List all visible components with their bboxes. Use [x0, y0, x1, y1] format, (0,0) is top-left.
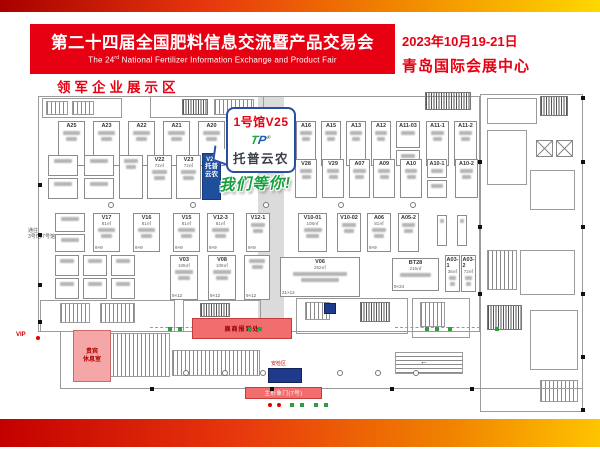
booth-cell-17 [84, 178, 114, 199]
booth-A10-2: A10-2 [455, 159, 478, 198]
column-circle-4 [410, 202, 416, 208]
booth-V23: V2372㎡ [176, 155, 201, 199]
booth-V06: V06252㎡21×12 [280, 257, 360, 297]
column-square-14 [270, 387, 274, 391]
booth-cell-30 [55, 213, 85, 232]
booth-cell-48 [111, 278, 135, 299]
booth-cell-41 [437, 215, 447, 246]
green-marker-6 [448, 327, 452, 331]
booth-V12-1: V12-19×9 [246, 213, 270, 252]
registration-desk: 展商报到处 [192, 318, 292, 339]
callout-bubble: 1号馆V25 TP® 托普云农 [226, 107, 296, 173]
red-marker-1 [268, 403, 272, 407]
column-square-9 [581, 225, 585, 229]
vip-label: VIP [16, 332, 26, 338]
main-gate-banner: 主形象门(7号) [245, 387, 322, 399]
structure-vs-3 [46, 101, 68, 115]
structure-ds-6 [182, 99, 208, 115]
column-circle-5 [183, 370, 189, 376]
green-marker-3 [258, 327, 262, 331]
structure-box-11 [487, 98, 537, 124]
slogan-text: 我们等你! [219, 171, 292, 196]
info-point-box [324, 303, 336, 314]
booth-V10-02: V10-02 [337, 213, 361, 252]
column-circle-1 [190, 202, 196, 208]
booth-A05-2: A05-2 [398, 213, 419, 252]
structure-ds-26 [200, 303, 230, 317]
column-square-7 [581, 96, 585, 100]
vip-lounge: 贵宾 休息室 [73, 330, 111, 382]
booth-V15: V1581㎡9×9 [173, 213, 200, 252]
booth-V08: V08108㎡9×12 [208, 255, 236, 300]
column-circle-7 [260, 370, 266, 376]
column-circle-0 [108, 202, 114, 208]
booth-A03-2: A03-272㎡ [461, 255, 476, 292]
booth-A07: A07 [349, 159, 370, 198]
column-circle-9 [375, 370, 381, 376]
structure-vs-23 [60, 303, 90, 323]
green-marker-5 [435, 327, 439, 331]
booth-A03-1: A03-136㎡ [445, 255, 460, 292]
floorplan: 通往 3号馆/7号馆 VIP 贵宾 休息室 展商报到处 安检区 主形象门(7号)… [0, 0, 600, 450]
booth-V17: V1781㎡9×9 [93, 213, 120, 252]
booth-cell-31 [55, 234, 85, 252]
bottom-gradient-bar [0, 419, 600, 447]
booth-cell-15 [48, 178, 78, 199]
booth-cell-46 [83, 278, 107, 299]
callout-hall-booth: 1号馆V25 [233, 113, 288, 130]
green-marker-4 [425, 327, 429, 331]
structure-vs-31 [420, 302, 445, 327]
red-marker-2 [277, 403, 281, 407]
column-circle-3 [338, 202, 344, 208]
booth-V16: V1681㎡9×9 [133, 213, 160, 252]
booth-cell-44 [55, 278, 79, 299]
green-marker-1 [178, 327, 182, 331]
booth-A11-03: A11-03 [396, 121, 420, 148]
booth-V03: V03108㎡9×12 [170, 255, 198, 300]
booth-cell-43 [55, 255, 79, 276]
structure-ds-9 [425, 92, 471, 110]
green-marker-11 [324, 403, 328, 407]
green-marker-9 [300, 403, 304, 407]
column-square-4 [478, 160, 482, 164]
booth-V22: V2272㎡ [147, 155, 172, 199]
booth-cell-42 [457, 215, 467, 246]
column-square-3 [38, 320, 42, 324]
booth-A06: A0681㎡9×9 [367, 213, 391, 252]
structure-x-14 [536, 140, 553, 157]
column-square-11 [581, 355, 585, 359]
structure-vs-4 [72, 101, 94, 115]
booth-cell-45 [83, 255, 107, 276]
booth-V12-3: V12-381㎡9×9 [207, 213, 234, 252]
structure-x-15 [556, 140, 573, 157]
structure-ds-12 [540, 96, 568, 116]
booth-BT28: BT28216㎡9×24 [392, 258, 439, 291]
column-square-5 [478, 225, 482, 229]
structure-ds-29 [360, 302, 390, 322]
structure-box-20 [530, 310, 578, 370]
column-square-12 [581, 408, 585, 412]
column-circle-6 [222, 370, 228, 376]
column-square-8 [581, 160, 585, 164]
structure-box-13 [487, 130, 527, 185]
green-marker-8 [290, 403, 294, 407]
column-square-0 [38, 183, 42, 187]
booth-cell-14 [48, 155, 78, 176]
green-marker-2 [248, 327, 252, 331]
green-marker-10 [314, 403, 318, 407]
brand-name: 托普云农 [233, 148, 289, 167]
poster-page: 第二十四届全国肥料信息交流暨产品交易会 The 24rd National Fe… [0, 0, 600, 450]
structure-vl-36 [60, 332, 61, 388]
booth-cell-18 [119, 155, 143, 199]
booth-A10: A10 [400, 159, 422, 198]
booth-cell-51: 9×12 [244, 255, 270, 300]
column-square-10 [581, 292, 585, 296]
column-square-15 [390, 387, 394, 391]
column-square-1 [38, 233, 42, 237]
brand-logo-icon: TP® [250, 132, 272, 146]
red-marker-0 [36, 336, 40, 340]
security-area-box [268, 368, 302, 383]
column-square-6 [478, 292, 482, 296]
column-circle-8 [337, 370, 343, 376]
column-circle-10 [413, 370, 419, 376]
column-square-13 [150, 387, 154, 391]
structure-vs-21 [540, 380, 578, 402]
booth-A09: A09 [373, 159, 395, 198]
structure-vs-17 [487, 250, 517, 290]
structure-box-18 [520, 250, 575, 295]
structure-box-16 [530, 170, 575, 210]
booth-V10-01: V10-01108㎡ [298, 213, 327, 252]
escalator-arrow-icon: ← [420, 357, 428, 366]
booth-V28: V28 [295, 159, 317, 198]
column-circle-2 [263, 202, 269, 208]
booth-cell-47 [111, 255, 135, 276]
booth-cell-28 [427, 180, 447, 198]
booth-cell-16 [84, 155, 114, 176]
structure-hs-34 [395, 352, 463, 374]
booth-A10-1: A10-1 [427, 159, 447, 178]
structure-vs-24 [100, 303, 135, 323]
structure-ds-19 [487, 305, 522, 330]
structure-dash-8 [264, 96, 424, 97]
green-marker-7 [495, 327, 499, 331]
booth-V29: V29 [322, 159, 344, 198]
security-area-label: 安检区 [271, 360, 286, 367]
column-square-16 [470, 387, 474, 391]
column-square-2 [38, 283, 42, 287]
green-marker-0 [168, 327, 172, 331]
